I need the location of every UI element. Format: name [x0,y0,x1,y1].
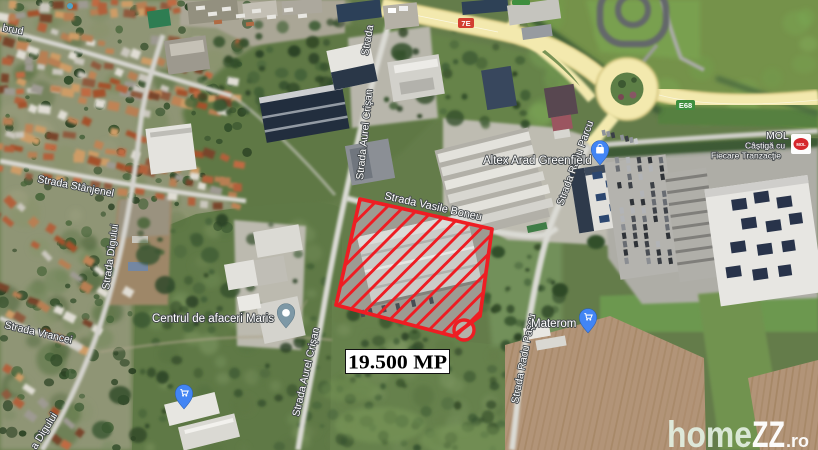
svg-text:19.500 MP: 19.500 MP [348,352,447,374]
svg-text:.ro: .ro [786,431,809,450]
svg-text:Fiecare Tranzacţie: Fiecare Tranzacţie [711,151,781,161]
svg-text:E68: E68 [679,101,692,110]
svg-text:Câştigă cu: Câştigă cu [745,141,785,151]
svg-text:Materom: Materom [531,318,576,330]
svg-text:Altex Arad Greenfield: Altex Arad Greenfield [483,155,592,167]
svg-text:ZZ: ZZ [752,414,785,450]
svg-text:MOL: MOL [796,142,806,147]
svg-text:Centrul de afaceri Maris: Centrul de afaceri Maris [152,313,274,325]
svg-text:7E: 7E [461,19,470,28]
svg-text:home: home [667,414,752,450]
